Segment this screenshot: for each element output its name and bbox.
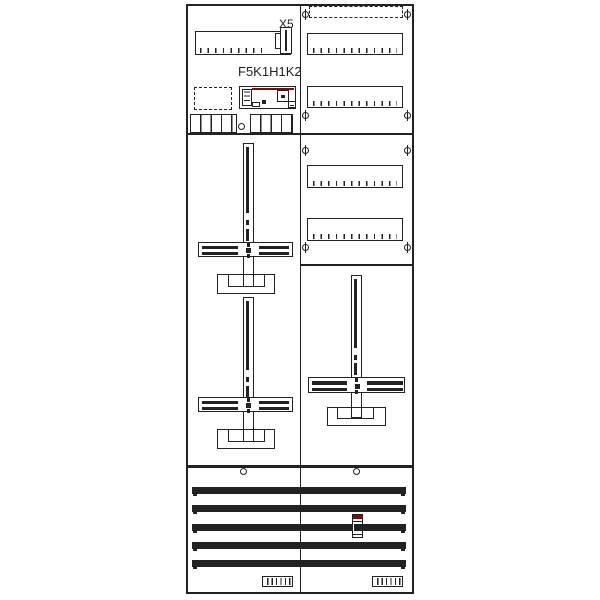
rail-screw-dot xyxy=(354,355,357,360)
meter-bracket-notch xyxy=(228,429,265,442)
device-dot xyxy=(262,100,266,104)
rail-slot xyxy=(246,301,249,370)
screw-icon xyxy=(404,147,411,154)
device-step xyxy=(252,102,260,107)
connector-slot xyxy=(285,30,286,51)
section-divider-busbar xyxy=(186,465,414,468)
rail-slot xyxy=(246,386,249,397)
device-group-label: F5K1H1K2 xyxy=(238,65,302,78)
din-rail-cover xyxy=(307,33,403,55)
screw-icon xyxy=(404,112,411,119)
terminal-comb xyxy=(372,576,403,587)
cross-center-dot xyxy=(355,384,360,389)
connector-body xyxy=(280,27,292,54)
rail-stub xyxy=(247,409,250,413)
rail-stub xyxy=(355,390,358,394)
screw-icon xyxy=(302,112,309,119)
reserve-area-dashed xyxy=(194,87,232,110)
screw-icon xyxy=(404,11,411,18)
connector-bar-window xyxy=(354,524,362,531)
rail-screw-dot xyxy=(246,220,249,225)
rail-stub xyxy=(247,243,250,247)
rail-stub xyxy=(355,378,358,382)
breaker-hatch xyxy=(244,91,250,104)
connector-red-cap xyxy=(353,515,362,519)
arm-slot xyxy=(259,252,289,256)
meter-crossarm xyxy=(198,397,293,412)
arm-slot xyxy=(367,388,403,392)
connector-line xyxy=(353,521,362,522)
arm-slot xyxy=(202,246,238,250)
rail-stub xyxy=(247,254,250,258)
screw-icon xyxy=(302,11,309,18)
terminal-mark xyxy=(290,105,294,106)
meter-bracket-notch xyxy=(228,274,265,287)
duct-slats xyxy=(251,115,292,132)
relay-mark xyxy=(281,95,285,98)
duct-slats xyxy=(191,115,236,132)
arm-slot xyxy=(202,407,238,411)
din-rail-cover xyxy=(307,86,403,108)
terminal-comb xyxy=(262,576,293,587)
arm-slot xyxy=(312,381,347,385)
terminal-ticks xyxy=(200,48,268,53)
meter-crossarm xyxy=(308,377,405,393)
busbar-connector xyxy=(352,514,363,538)
cross-center-dot xyxy=(246,403,251,408)
din-rail-cover xyxy=(307,165,403,188)
wiring-duct-right xyxy=(250,114,293,133)
panel-diagram: X5 F5K1H1K2 xyxy=(0,0,600,600)
arm-slot xyxy=(367,381,403,385)
arm-slot xyxy=(259,246,289,250)
meter-crossarm xyxy=(198,242,293,257)
device-terminal xyxy=(288,101,296,108)
rail-ticks xyxy=(313,234,397,239)
wiring-duct-left xyxy=(190,114,237,133)
rail-ticks xyxy=(313,181,397,186)
cross-center-dot xyxy=(246,248,251,253)
comb-slats xyxy=(264,578,291,585)
arm-slot xyxy=(259,407,289,411)
rail-slot xyxy=(354,279,357,348)
mounting-hole xyxy=(240,468,247,475)
din-rail-cover xyxy=(307,218,403,241)
arm-slot xyxy=(202,252,238,256)
meter-bracket-notch xyxy=(337,407,374,419)
device-breaker xyxy=(242,89,252,106)
duct-hole xyxy=(238,123,245,130)
screw-icon xyxy=(404,244,411,251)
rail-ticks xyxy=(313,48,397,53)
section-divider-top xyxy=(186,133,414,135)
screw-icon xyxy=(302,244,309,251)
rail-slot xyxy=(246,147,249,213)
rail-slot xyxy=(354,363,357,375)
arm-slot xyxy=(202,401,238,405)
column-divider xyxy=(300,4,302,593)
rail-screw-dot xyxy=(246,377,249,382)
section-divider-right xyxy=(300,264,414,266)
comb-slats xyxy=(374,578,401,585)
arm-slot xyxy=(312,388,347,392)
rail-ticks xyxy=(313,101,397,106)
rail-stub xyxy=(247,398,250,402)
rail-slot xyxy=(246,229,249,241)
connector-line xyxy=(353,534,362,535)
device-box xyxy=(239,86,296,109)
screw-icon xyxy=(302,147,309,154)
mounting-hole xyxy=(353,468,360,475)
arm-slot xyxy=(259,401,289,405)
cover-dashed-outline xyxy=(309,6,403,18)
